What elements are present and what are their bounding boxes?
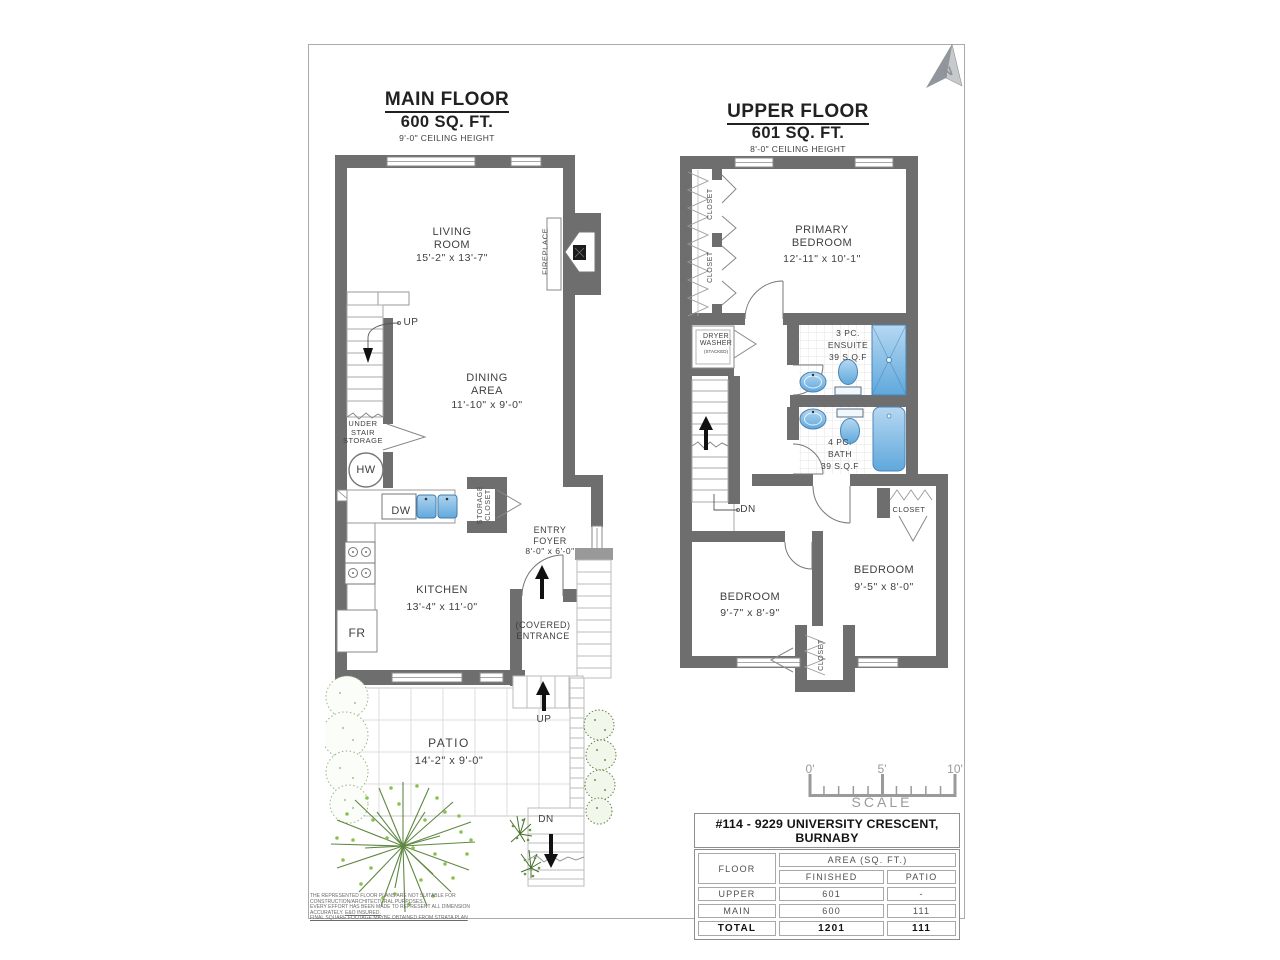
closet-label-2: CLOSET — [707, 247, 715, 287]
left-shrubs-icon — [325, 676, 368, 823]
tub-icon — [873, 407, 905, 471]
east-walkway — [570, 678, 584, 808]
row-total-floor: TOTAL — [698, 921, 776, 936]
disclaimer-line-3: FINAL SQUARE FOOTAGE MAYBE OBTAINED FROM… — [310, 916, 485, 922]
main-floor-ceiling: 9'-0" CEILING HEIGHT — [367, 133, 527, 143]
primary-bedroom-label: PRIMARY BEDROOM — [762, 224, 882, 251]
closet-label-4: CLOSET — [818, 635, 826, 675]
entry-foyer-dims: 8'-0" x 6'-0" — [510, 546, 590, 556]
col-finished: FINISHED — [779, 870, 884, 884]
row-total-finished: 1201 — [779, 921, 884, 936]
scale-tick-5: 5' — [872, 762, 892, 776]
fr-label: FR — [342, 626, 372, 641]
kitchen-label: KITCHEN — [382, 584, 502, 597]
covered-entrance-label: (COVERED) ENTRANCE — [503, 620, 583, 642]
table-row: UPPER 601 - — [698, 887, 956, 901]
dn-label-upper: DN — [733, 504, 763, 516]
fireplace-label: FIREPLACE — [542, 219, 551, 283]
dw-label: DW — [386, 505, 416, 518]
laundry-stacked-label: (STACKED) — [692, 349, 740, 354]
row-upper-floor: UPPER — [698, 887, 776, 901]
row-main-floor: MAIN — [698, 904, 776, 918]
area-table-grid: FLOOR AREA (SQ. FT.) FINISHED PATIO UPPE… — [694, 849, 960, 940]
primary-bedroom-dims: 12'-11" x 10'-1" — [762, 253, 882, 266]
entry-foyer-label: ENTRY FOYER — [520, 525, 580, 547]
laundry-dryer-label: DRYER — [692, 333, 740, 340]
ensuite-label: 3 PC. ENSUITE 39 S.Q.F — [813, 328, 883, 364]
col-area: AREA (SQ. FT.) — [779, 853, 956, 867]
ensuite-sink-icon — [800, 372, 826, 392]
side-steps — [575, 548, 613, 678]
bath-label: 4 PC. BATH 39 S.Q.F — [805, 437, 875, 473]
stove-icon — [345, 542, 375, 584]
entrance-arrow-icon — [535, 565, 549, 579]
laundry-washer-label: WASHER — [692, 340, 740, 347]
main-floor-title: MAIN FLOOR — [367, 88, 527, 111]
upper-floor-area: 601 SQ. FT. — [718, 123, 878, 143]
address-title: #114 - 9229 UNIVERSITY CRESCENT, BURNABY — [694, 813, 960, 848]
under-stair-storage-label: UNDER STAIR STORAGE — [328, 420, 398, 446]
storage-closet-label: STORAGE CLOSET — [477, 481, 493, 529]
bedroom-right-dims: 9'-5" x 8'-0" — [824, 581, 944, 594]
bedroom-left-dims: 9'-7" x 8'-9" — [690, 607, 810, 620]
dining-area-dims: 11'-10" x 9'-0" — [427, 399, 547, 412]
row-upper-patio: - — [887, 887, 956, 901]
col-patio: PATIO — [887, 870, 956, 884]
bedroom-left-label: BEDROOM — [690, 591, 810, 604]
living-room-label: LIVING ROOM — [392, 226, 512, 253]
entry-door — [522, 555, 563, 599]
living-room-dims: 15'-2" x 13'-7" — [392, 252, 512, 265]
hw-label: HW — [351, 464, 381, 477]
dining-area-label: DINING AREA — [427, 372, 547, 399]
scale-tick-10: 10' — [941, 762, 969, 776]
upper-floor-ceiling: 8'-0" CEILING HEIGHT — [718, 144, 878, 154]
floor-plan-page: N 0' 5' 10' SCALE MAIN FLOOR 600 SQ. FT.… — [0, 0, 1280, 960]
bedroom-right-label: BEDROOM — [824, 564, 944, 577]
upper-floor-title: UPPER FLOOR — [718, 100, 878, 123]
table-row-total: TOTAL 1201 111 — [698, 921, 956, 936]
scale-tick-0: 0' — [800, 762, 820, 776]
table-row: MAIN 600 111 — [698, 904, 956, 918]
scale-label: SCALE — [842, 794, 922, 810]
row-total-patio: 111 — [887, 921, 956, 936]
col-floor: FLOOR — [698, 853, 776, 884]
closet-label-3: CLOSET — [884, 505, 934, 514]
laundry-label: DRYER WASHER (STACKED) — [692, 333, 740, 354]
main-floor-drawing — [325, 148, 625, 928]
patio-dn-label: DN — [531, 814, 561, 826]
row-main-patio: 111 — [887, 904, 956, 918]
main-floor-area: 600 SQ. FT. — [367, 112, 527, 132]
disclaimer: THE REPRESENTED FLOOR PLANS ARE NOT SUIT… — [310, 894, 485, 922]
patio-up-label: UP — [529, 714, 559, 726]
right-shrubs-icon — [584, 710, 616, 824]
closet-label-1: CLOSET — [707, 184, 715, 224]
area-table: #114 - 9229 UNIVERSITY CRESCENT, BURNABY… — [694, 813, 960, 940]
bath-sink-icon — [800, 409, 826, 429]
row-main-finished: 600 — [779, 904, 884, 918]
up-label-main: UP — [396, 317, 426, 329]
kitchen-dims: 13'-4" x 11'-0" — [382, 601, 502, 614]
row-upper-finished: 601 — [779, 887, 884, 901]
patio-dims: 14'-2" x 9'-0" — [389, 755, 509, 768]
patio-label: PATIO — [389, 736, 509, 751]
